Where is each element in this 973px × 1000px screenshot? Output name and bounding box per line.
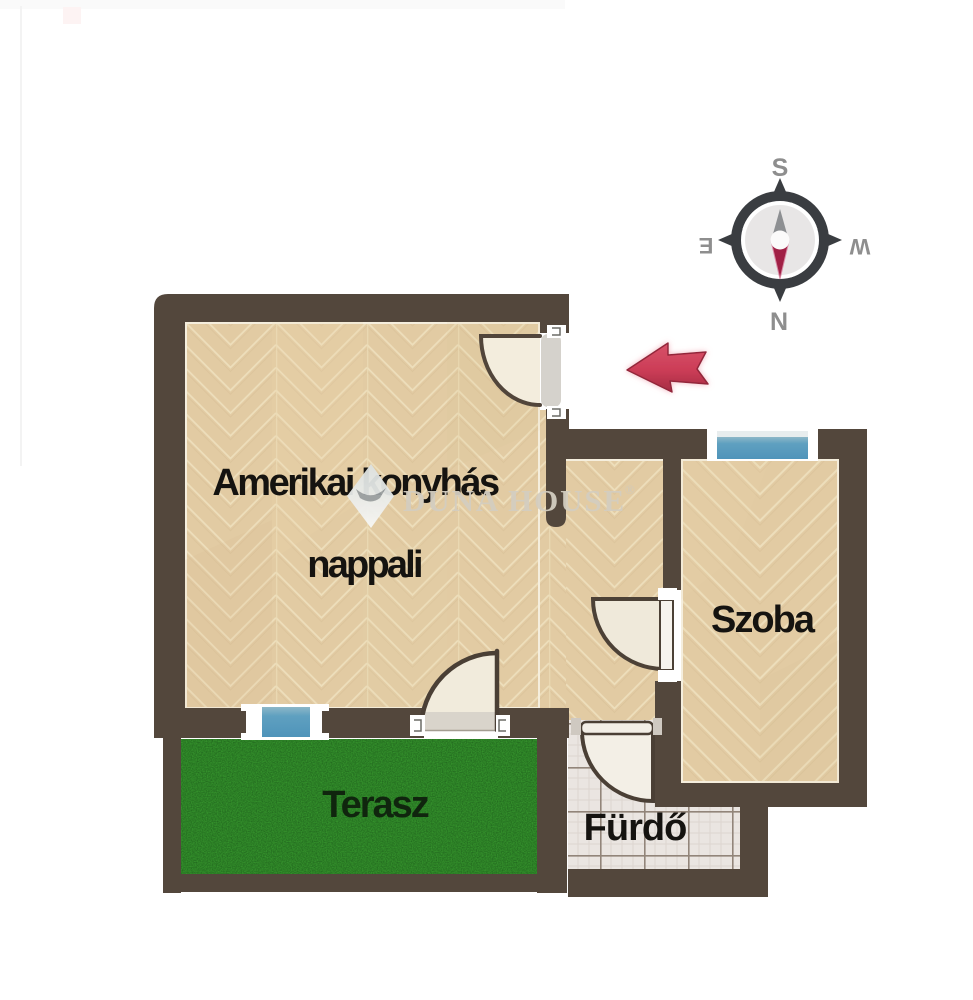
svg-text:Terasz: Terasz <box>322 784 429 826</box>
svg-text:S: S <box>772 154 789 182</box>
svg-text:nappali: nappali <box>307 544 421 586</box>
svg-text:®: ® <box>625 482 635 497</box>
svg-text:N: N <box>770 308 788 336</box>
svg-text:Szoba: Szoba <box>711 599 816 641</box>
svg-text:DUNA HOUSE: DUNA HOUSE <box>403 483 626 518</box>
svg-text:E: E <box>699 233 714 258</box>
svg-text:Fürdő: Fürdő <box>584 807 687 849</box>
svg-text:W: W <box>849 234 870 259</box>
